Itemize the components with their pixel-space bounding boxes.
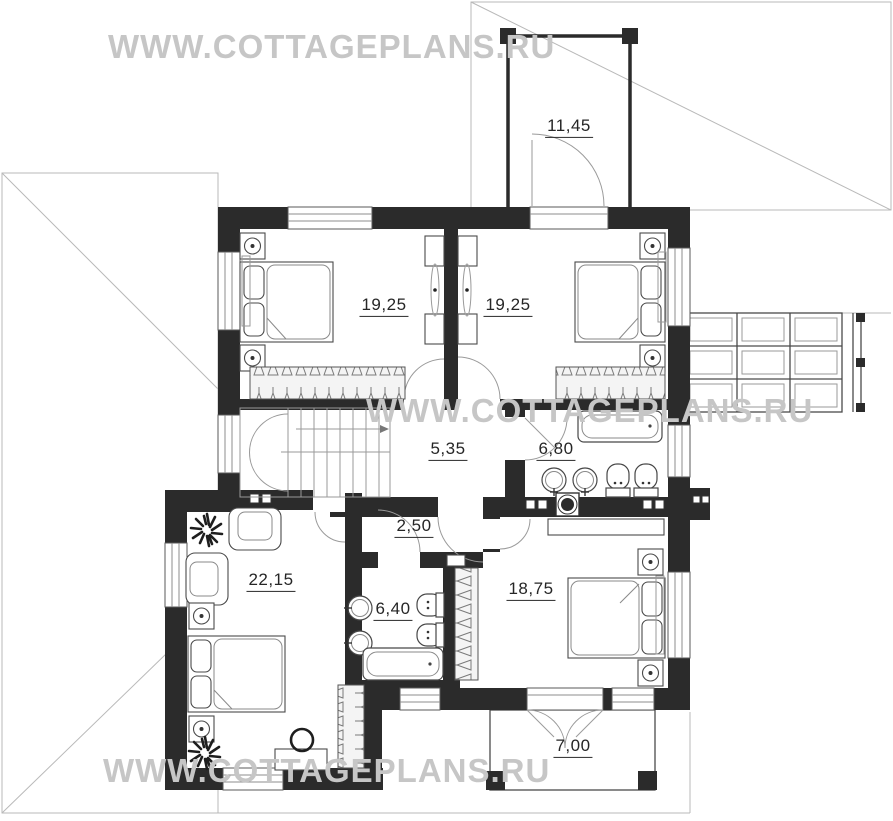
toilet-icon — [634, 464, 658, 497]
window — [400, 688, 440, 710]
wardrobe-icon — [455, 568, 478, 680]
room-label-balcony: 11,45 — [545, 116, 593, 138]
balcony-post — [622, 28, 638, 44]
room-label-bathroom-2: 6,40 — [373, 599, 412, 621]
armchair-icon — [229, 508, 281, 550]
room-label-bedroom-1: 19,25 — [359, 295, 408, 317]
dresser — [548, 519, 664, 535]
room-label-stair-hall: 5,35 — [428, 439, 467, 461]
toilet-icon — [417, 593, 444, 617]
room-label-corridor: 2,50 — [394, 516, 433, 538]
ventilation-fan-icon — [556, 493, 579, 516]
double-bed-icon — [240, 262, 333, 342]
balcony-door — [530, 134, 608, 229]
window — [288, 207, 372, 229]
armchair-icon — [186, 553, 228, 605]
toilet-icon — [606, 464, 630, 497]
window — [218, 252, 240, 330]
window — [668, 248, 690, 326]
double-bed-icon — [575, 262, 665, 342]
watermark-middle: WWW.COTTAGEPLANS.RU — [366, 392, 813, 430]
double-bed-icon — [568, 578, 665, 658]
bathtub-icon — [363, 648, 443, 680]
exterior-pier — [690, 488, 710, 520]
toilet-icon — [417, 623, 444, 647]
window — [668, 572, 690, 658]
floor-plan: WWW.COTTAGEPLANS.RU WWW.COTTAGEPLANS.RU … — [0, 0, 893, 821]
watermark-top: WWW.COTTAGEPLANS.RU — [108, 28, 555, 66]
window — [612, 688, 654, 710]
room-label-bathroom-1: 6,80 — [536, 439, 575, 461]
window — [668, 425, 690, 477]
room-label-terrace: 7,00 — [553, 736, 592, 758]
window — [218, 415, 240, 473]
terrace-post — [638, 771, 657, 790]
window — [165, 543, 187, 607]
double-bed-icon — [188, 636, 285, 712]
shelf — [447, 555, 465, 566]
room-label-bedroom-3: 18,75 — [506, 579, 555, 601]
watermark-bottom: WWW.COTTAGEPLANS.RU — [103, 752, 550, 790]
room-label-master-bedroom: 22,15 — [246, 570, 295, 592]
room-label-bedroom-2: 19,25 — [483, 295, 532, 317]
